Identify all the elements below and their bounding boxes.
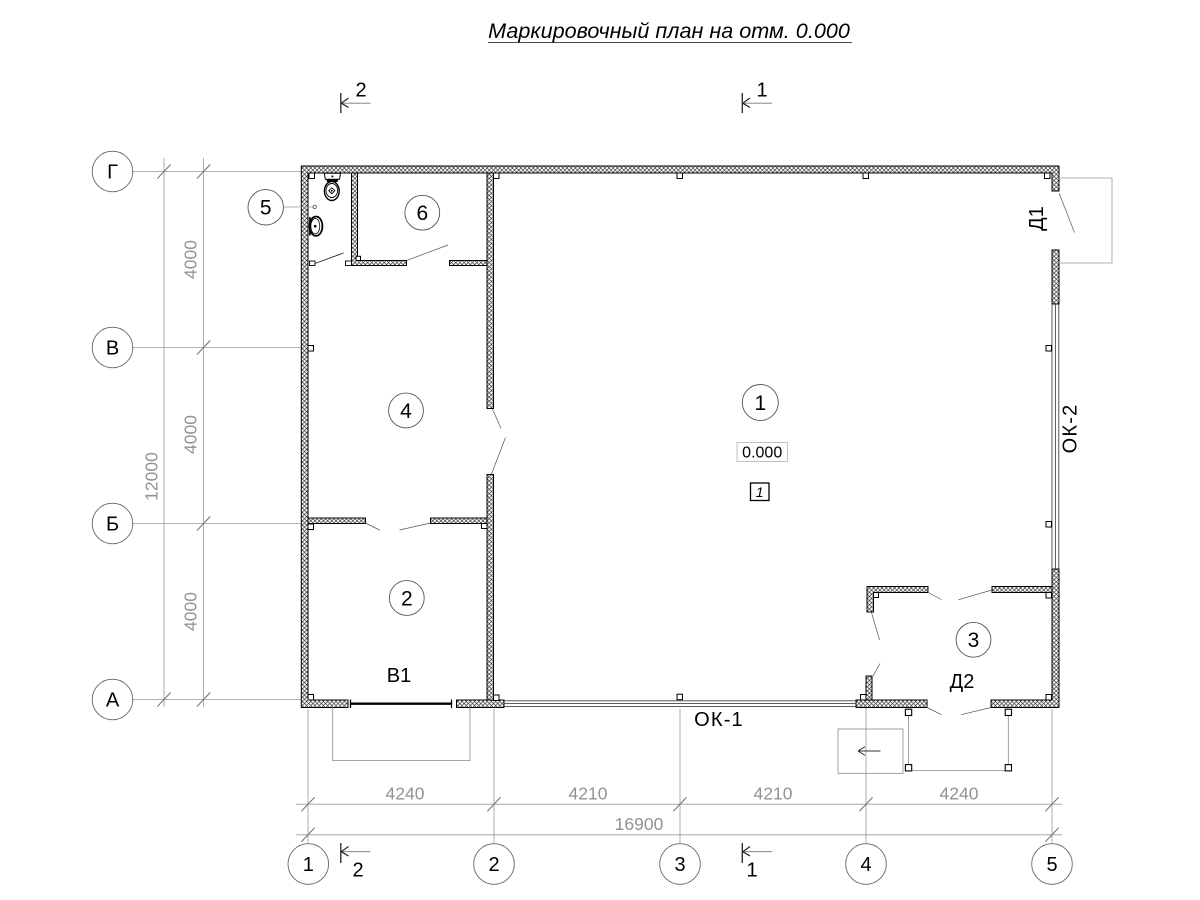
svg-text:4000: 4000 xyxy=(181,240,201,279)
svg-text:Г: Г xyxy=(107,162,118,184)
svg-text:0.000: 0.000 xyxy=(742,445,782,462)
svg-text:1: 1 xyxy=(756,484,764,500)
svg-text:4210: 4210 xyxy=(569,784,608,804)
svg-text:1: 1 xyxy=(746,860,757,882)
svg-text:Б: Б xyxy=(106,514,119,536)
svg-text:12000: 12000 xyxy=(142,452,162,501)
svg-text:4: 4 xyxy=(400,400,412,423)
svg-text:Д2: Д2 xyxy=(950,671,975,693)
svg-text:В1: В1 xyxy=(387,665,411,687)
svg-text:6: 6 xyxy=(416,202,428,225)
svg-text:4000: 4000 xyxy=(181,415,201,454)
svg-text:16900: 16900 xyxy=(615,814,664,834)
svg-text:3: 3 xyxy=(674,854,685,876)
svg-text:4210: 4210 xyxy=(754,784,793,804)
svg-text:4: 4 xyxy=(860,854,871,876)
svg-text:ОК-2: ОК-2 xyxy=(1060,404,1082,454)
svg-text:Д1: Д1 xyxy=(1026,206,1048,231)
svg-text:1: 1 xyxy=(303,854,314,876)
svg-text:4240: 4240 xyxy=(940,784,979,804)
svg-text:2: 2 xyxy=(352,860,363,882)
svg-text:Маркировочный план на отм. 0.0: Маркировочный план на отм. 0.000 xyxy=(488,18,850,43)
svg-text:1: 1 xyxy=(756,80,767,102)
svg-text:ОК-1: ОК-1 xyxy=(694,709,744,731)
svg-text:1: 1 xyxy=(754,392,766,415)
svg-text:3: 3 xyxy=(968,629,980,652)
svg-text:4240: 4240 xyxy=(386,784,425,804)
svg-text:А: А xyxy=(106,690,120,712)
svg-text:2: 2 xyxy=(488,854,499,876)
svg-text:2: 2 xyxy=(355,80,366,102)
svg-text:В: В xyxy=(106,338,119,360)
svg-text:2: 2 xyxy=(401,587,413,610)
svg-text:5: 5 xyxy=(260,197,272,220)
svg-text:5: 5 xyxy=(1046,854,1057,876)
svg-text:4000: 4000 xyxy=(181,592,201,631)
